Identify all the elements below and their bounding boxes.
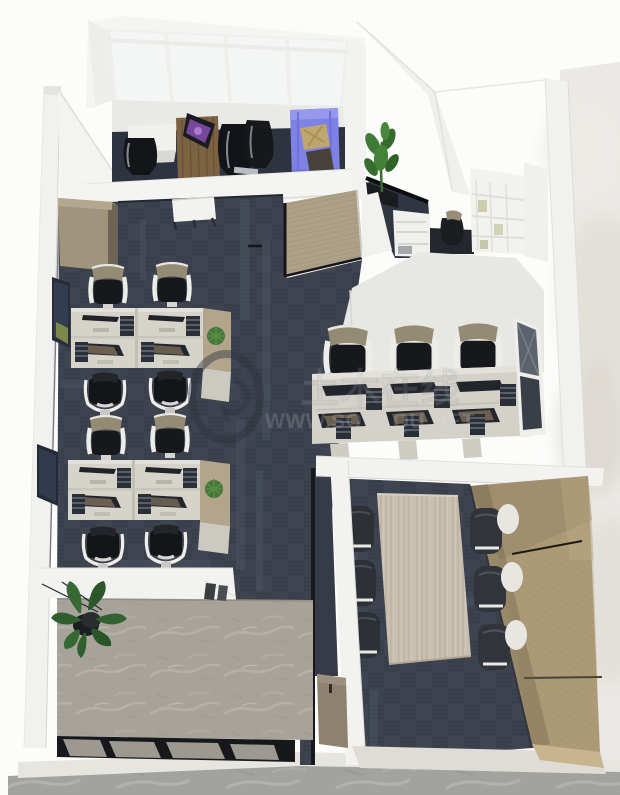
svg-text:土木在线: 土木在线 [300,367,460,411]
svg-text:WWW.SOOLQU.NET: WWW.SOOLQU.NET [265,410,475,433]
